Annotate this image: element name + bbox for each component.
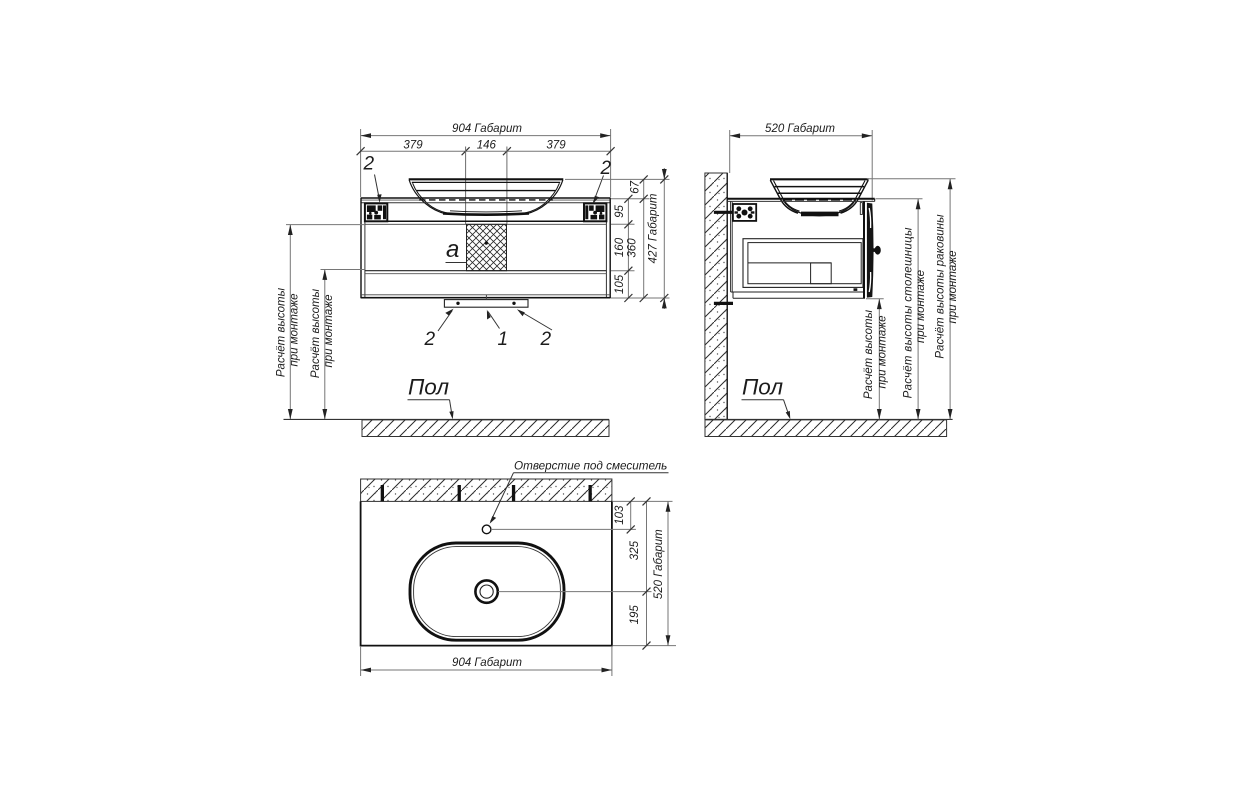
svg-text:Расчёт высоты: Расчёт высоты xyxy=(863,309,875,399)
svg-text:1: 1 xyxy=(498,329,509,350)
svg-text:105: 105 xyxy=(614,274,626,294)
svg-text:379: 379 xyxy=(546,139,566,151)
svg-text:при монтаже: при монтаже xyxy=(323,294,335,367)
svg-text:520 Габарит: 520 Габарит xyxy=(653,529,665,599)
svg-text:Пол: Пол xyxy=(408,375,449,400)
svg-text:67: 67 xyxy=(629,180,641,193)
svg-text:2: 2 xyxy=(363,154,375,175)
svg-text:146: 146 xyxy=(477,139,497,151)
svg-text:160: 160 xyxy=(614,237,626,257)
svg-text:при монтаже: при монтаже xyxy=(947,250,959,323)
svg-text:2: 2 xyxy=(540,329,552,350)
svg-text:Расчёт высоты: Расчёт высоты xyxy=(310,288,322,378)
svg-text:325: 325 xyxy=(629,540,641,560)
svg-text:при монтаже: при монтаже xyxy=(289,293,301,366)
svg-text:Отверстие под смеситель: Отверстие под смеситель xyxy=(514,460,667,473)
svg-text:904 Габарит: 904 Габарит xyxy=(452,123,522,135)
svg-text:Пол: Пол xyxy=(742,375,783,400)
svg-text:360: 360 xyxy=(627,238,639,258)
svg-text:при монтаже: при монтаже xyxy=(915,270,927,343)
svg-text:2: 2 xyxy=(424,329,436,350)
svg-text:Расчёт высоты столешницы: Расчёт высоты столешницы xyxy=(902,227,914,398)
svg-text:103: 103 xyxy=(614,505,626,525)
svg-text:Расчёт высоты раковины: Расчёт высоты раковины xyxy=(935,214,947,359)
svg-text:95: 95 xyxy=(614,205,626,218)
svg-text:Расчёт высоты: Расчёт высоты xyxy=(276,287,288,377)
svg-text:904 Габарит: 904 Габарит xyxy=(452,657,522,669)
svg-text:427 Габарит: 427 Габарит xyxy=(648,193,660,263)
svg-text:a: a xyxy=(446,236,459,263)
svg-text:при монтаже: при монтаже xyxy=(877,315,889,388)
svg-text:2: 2 xyxy=(600,158,612,179)
svg-text:379: 379 xyxy=(403,139,423,151)
svg-text:195: 195 xyxy=(629,605,641,625)
svg-text:520 Габарит: 520 Габарит xyxy=(765,123,835,135)
